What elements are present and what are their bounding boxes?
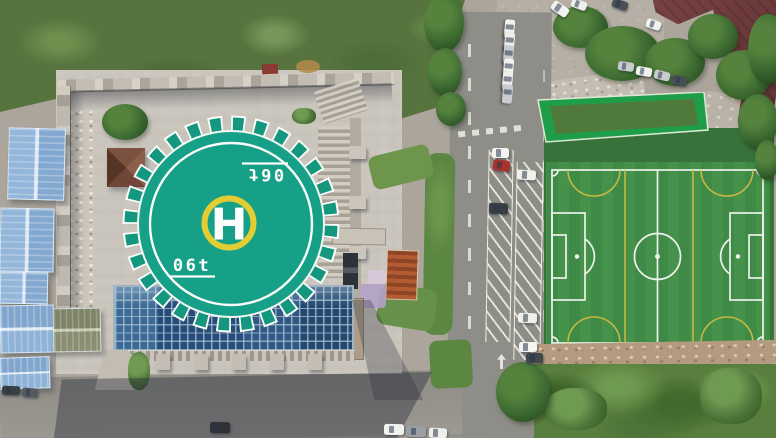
car bbox=[429, 428, 447, 438]
car bbox=[517, 170, 536, 181]
parking-spaces-left bbox=[485, 150, 513, 342]
shed-roof bbox=[0, 208, 55, 273]
wall-pier bbox=[270, 354, 284, 370]
helipad-weight-marking-top: 06t bbox=[242, 164, 288, 185]
wall-pier bbox=[194, 354, 208, 370]
wall-pier bbox=[308, 354, 322, 370]
helipad: H 06t 06t bbox=[116, 109, 346, 339]
lane-dashes bbox=[468, 44, 471, 354]
shed-roof bbox=[7, 127, 66, 200]
car bbox=[489, 203, 508, 215]
svg-text:06t: 06t bbox=[173, 256, 211, 276]
bush bbox=[545, 388, 607, 430]
tree bbox=[436, 92, 466, 126]
sand-mound bbox=[296, 60, 320, 73]
car bbox=[526, 353, 543, 363]
svg-text:06t: 06t bbox=[246, 164, 284, 184]
aerial-photo-scene: H 06t 06t bbox=[0, 0, 776, 438]
tree bbox=[428, 48, 462, 96]
wall-pier bbox=[156, 354, 170, 370]
car bbox=[384, 424, 404, 435]
helipad-letter: H bbox=[211, 200, 248, 251]
wall-shadow bbox=[70, 92, 85, 307]
wall-pier bbox=[349, 196, 366, 209]
car bbox=[22, 387, 39, 397]
car bbox=[519, 342, 537, 352]
construction-scaffold bbox=[385, 249, 419, 300]
shed-roof bbox=[0, 356, 51, 390]
shed-roof bbox=[0, 272, 48, 305]
car bbox=[502, 84, 514, 104]
bush bbox=[292, 108, 316, 124]
shed-roof bbox=[0, 305, 54, 354]
red-object-on-wall bbox=[262, 64, 279, 75]
tree bbox=[496, 362, 550, 422]
wall-pier bbox=[232, 354, 246, 370]
bush bbox=[700, 368, 762, 424]
grass-patch bbox=[429, 339, 473, 389]
tree bbox=[755, 140, 776, 180]
helipad-weight-marking-bottom: 06t bbox=[169, 256, 215, 277]
wall-pier bbox=[349, 146, 366, 159]
car bbox=[210, 422, 230, 433]
car bbox=[492, 148, 509, 158]
purple-tarp bbox=[368, 270, 386, 284]
car bbox=[2, 386, 20, 396]
car bbox=[492, 159, 510, 172]
car bbox=[518, 313, 537, 324]
car bbox=[406, 426, 426, 438]
shed-roof bbox=[53, 308, 102, 353]
